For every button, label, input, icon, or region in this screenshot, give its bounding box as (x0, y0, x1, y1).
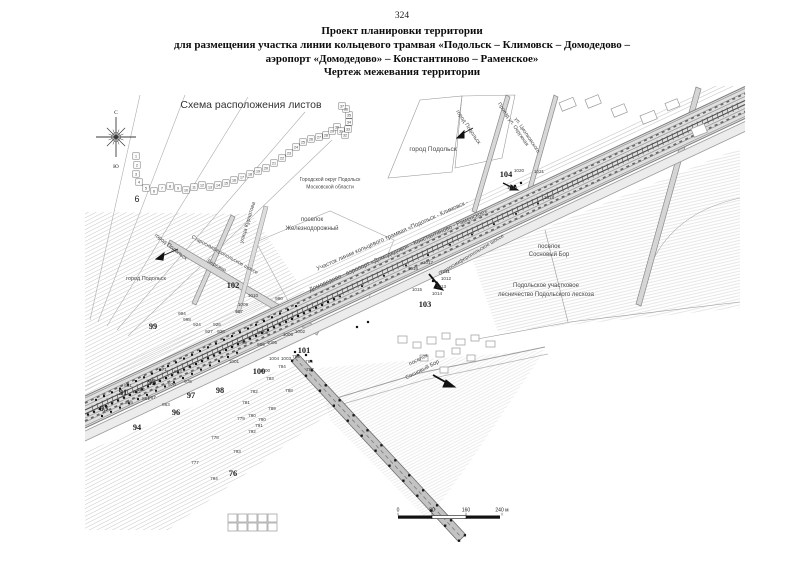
point-number: 792 (248, 429, 256, 434)
point-number: 926 (213, 322, 221, 327)
boundary-point (183, 368, 185, 370)
point-number: 1012 (441, 276, 452, 281)
boundary-point (93, 411, 95, 413)
chain-sheet-number: 19 (256, 169, 260, 173)
boundary-point (367, 321, 369, 323)
boundary-point (450, 519, 452, 521)
chain-sheet-number: 22 (280, 156, 284, 160)
boundary-point (103, 395, 105, 397)
point-number: 859 (125, 400, 133, 405)
point-number: 1005 (267, 340, 278, 345)
sheet-number: 91 (119, 388, 127, 397)
boundary-point (471, 234, 473, 236)
boundary-point (366, 429, 368, 431)
scale-segment (466, 516, 500, 519)
sheet-number: 94 (133, 423, 141, 432)
point-number: 784 (278, 364, 286, 369)
area-label: Сосновый Бор (529, 251, 570, 258)
area-label: поселок (301, 217, 324, 223)
boundary-point (155, 390, 157, 392)
area-label: Московской области (306, 184, 354, 191)
boundary-point (279, 313, 281, 315)
point-number: 778 (211, 435, 219, 440)
chain-sheet-number: 25 (301, 140, 305, 144)
point-number: 1013 (436, 284, 447, 289)
boundary-point (295, 305, 297, 307)
hatch-area-lower-center (318, 350, 545, 520)
boundary-point (319, 390, 321, 392)
boundary-point (95, 399, 97, 401)
boundary-point (143, 376, 145, 378)
boundary-point (352, 414, 354, 416)
scale-segment (398, 516, 432, 519)
point-number: 791 (255, 423, 263, 428)
boundary-point (285, 321, 287, 323)
boundary-point (327, 301, 329, 303)
boundary-point (87, 413, 89, 415)
boundary-point (117, 399, 119, 401)
boundary-point (101, 415, 103, 417)
boundary-point (416, 495, 418, 497)
area-label: лесничество Подольского лесхоза (498, 292, 595, 298)
boundary-point (356, 326, 358, 328)
area-label: город Подольск (454, 109, 482, 146)
scale-tick-label: 160 (462, 508, 471, 514)
boundary-point (111, 391, 113, 393)
boundary-point (135, 380, 137, 382)
chain-sheet-number: 26 (309, 137, 313, 141)
boundary-point (236, 352, 238, 354)
area-label: 6 (134, 194, 139, 204)
boundary-point (231, 346, 233, 348)
chain-sheet-number: 14 (216, 183, 220, 187)
area-label: Городской округ Подольск (300, 176, 362, 183)
compass-rose (96, 117, 136, 157)
point-number: 777 (191, 460, 199, 465)
chain-sheet-number: 27 (317, 135, 321, 139)
document-page: 324 Проект планировки территории для раз… (0, 0, 804, 571)
chain-sheet-number: 1 (135, 154, 137, 158)
point-number: 999 (257, 342, 265, 347)
point-number: 1014 (432, 291, 443, 296)
area-label: Железнодорожный (285, 225, 338, 232)
point-number: 1017 (423, 260, 434, 265)
point-number: 1020 (514, 168, 525, 173)
sheet-number: 95 (148, 378, 156, 387)
point-number: 928 (217, 329, 225, 334)
boundary-point (361, 435, 363, 437)
chain-sheet-number: 18 (248, 172, 252, 176)
sheet-number: 96 (172, 408, 180, 417)
boundary-point (294, 351, 296, 353)
scale-bar (398, 513, 502, 519)
boundary-point (215, 343, 217, 345)
point-number: 1003 (281, 356, 292, 361)
boundary-point (305, 375, 307, 377)
boundary-point (111, 402, 113, 404)
boundary-point (129, 394, 131, 396)
boundary-point (449, 244, 451, 246)
point-number: 1016 (408, 266, 419, 271)
chain-sheet-number: 15 (224, 181, 228, 185)
compass-north-label: С (114, 110, 118, 116)
boundary-point (225, 349, 227, 351)
boundary-point (303, 312, 305, 314)
boundary-point (247, 328, 249, 330)
chain-sheet-number: 13 (208, 185, 212, 189)
boundary-point (333, 298, 335, 300)
boundary-point (213, 354, 215, 356)
chain-sheet-number: 12 (200, 183, 204, 187)
chain-sheet-number: 10 (184, 188, 188, 192)
boundary-point (339, 296, 341, 298)
compass-south-label: Ю (113, 164, 119, 170)
point-number: 787 (306, 367, 314, 372)
boundary-point (458, 540, 460, 542)
point-number: 1021 (534, 169, 545, 174)
point-number: 1008 (258, 330, 269, 335)
area-label: город Подольск (409, 146, 456, 153)
point-number: 861 (142, 396, 150, 401)
sheet-number: 97 (187, 391, 195, 400)
point-number: 788 (285, 388, 293, 393)
boundary-point (164, 385, 166, 387)
boundary-point (209, 364, 211, 366)
point-number: 1004 (269, 356, 280, 361)
point-number: 1011 (440, 269, 450, 274)
boundary-point (191, 354, 193, 356)
area-label: город Подольск (126, 276, 167, 282)
boundary-point (309, 309, 311, 311)
boundary-point (218, 360, 220, 362)
point-number: 1018 (544, 195, 555, 200)
point-number: 785 (292, 354, 300, 359)
boundary-point (167, 365, 169, 367)
boundary-point (249, 338, 251, 340)
chain-sheet-number: 7 (161, 186, 163, 190)
area-label: Подольское участковое (513, 283, 580, 289)
boundary-point (520, 182, 522, 184)
boundary-point (291, 360, 293, 362)
sheet-number: 103 (419, 300, 431, 309)
chain-sheet-number: 35 (347, 113, 351, 117)
boundary-point (464, 534, 466, 536)
point-number: 1019 (507, 185, 518, 190)
boundary-point (287, 309, 289, 311)
boundary-point (199, 350, 201, 352)
point-number: 1009 (238, 302, 249, 307)
chain-sheet-number: 17 (240, 175, 244, 179)
sheet-number: 76 (229, 469, 237, 478)
boundary-point (165, 377, 167, 379)
point-number: 1015 (412, 287, 423, 292)
sheet-number: 104 (500, 170, 512, 179)
boundary-point (515, 213, 517, 215)
scale-ticks (398, 513, 502, 516)
chain-sheet-number: 28 (324, 133, 328, 137)
point-number: 924 (193, 322, 201, 327)
point-number: 1000 (260, 368, 271, 373)
boundary-point (436, 504, 438, 506)
boundary-point (374, 450, 376, 452)
boundary-point (271, 316, 273, 318)
boundary-point (200, 369, 202, 371)
chain-sheet-number: 11 (192, 185, 196, 189)
boundary-point (175, 361, 177, 363)
point-number: 998 (183, 317, 191, 322)
chain-sheet-number: 5 (145, 186, 147, 190)
chain-sheet-number: 34 (347, 120, 351, 124)
sheet-number: 93 (100, 404, 108, 413)
hatched-areas (85, 148, 740, 530)
map-drawing: Схема расположения листов6город Подольск… (0, 0, 804, 571)
boundary-point (347, 420, 349, 422)
boundary-point (405, 265, 407, 267)
boundary-point (291, 318, 293, 320)
boundary-point (183, 358, 185, 360)
chain-sheet-number: 9 (177, 186, 179, 190)
boundary-point (110, 411, 112, 413)
point-number: 790 (258, 417, 266, 422)
point-number: 786 (305, 359, 313, 364)
point-number: 994 (178, 311, 186, 316)
boundary-point (239, 331, 241, 333)
boundary-point (537, 203, 539, 205)
boundary-point (380, 444, 382, 446)
chain-sheet-number: 23 (287, 151, 291, 155)
point-number: 781 (242, 400, 250, 405)
boundary-point (333, 405, 335, 407)
boundary-point (325, 384, 327, 386)
point-number: 1001 (229, 359, 240, 364)
chain-sheet-number: 29 (330, 129, 334, 133)
boundary-point (137, 398, 139, 400)
chain-sheet-number: 32 (343, 133, 347, 137)
sheet-number: 99 (149, 322, 157, 331)
point-number: 987 (235, 309, 243, 314)
chain-sheet-number: 37 (340, 104, 344, 108)
boundary-point (315, 307, 317, 309)
boundary-point (195, 363, 197, 365)
chain-sheet-number: 8 (169, 184, 171, 188)
boundary-point (427, 254, 429, 256)
map-content: Схема расположения листов6город Подольск… (85, 73, 745, 542)
area-label: Схема расположения листов (180, 99, 322, 111)
point-number: 794 (210, 476, 218, 481)
boundary-point (223, 339, 225, 341)
boundary-point (263, 320, 265, 322)
boundary-point (493, 223, 495, 225)
scale-tick-label: 240 м (495, 508, 509, 514)
point-number: 862 (133, 389, 141, 394)
boundary-point (297, 315, 299, 317)
boundary-point (383, 275, 385, 277)
boundary-point (219, 352, 221, 354)
chain-sheet-number: 3 (135, 172, 137, 176)
boundary-point (207, 357, 209, 359)
point-number: 961 (124, 383, 132, 388)
boundary-point (207, 346, 209, 348)
chain-sheet-number: 36 (344, 107, 348, 111)
point-number: 780 (248, 413, 256, 418)
scale-tick-label: 80 (429, 508, 435, 514)
boundary-point (191, 373, 193, 375)
boundary-point (361, 285, 363, 287)
sheet-number: 102 (227, 281, 239, 290)
chain-sheet-number: 6 (153, 189, 155, 193)
point-number: 1006 (283, 332, 294, 337)
boundary-point (394, 459, 396, 461)
point-number: 779 (237, 416, 245, 421)
sheet-number: 98 (216, 386, 224, 395)
point-number: 927 (205, 329, 213, 334)
point-number: 971 (159, 367, 167, 372)
point-number: 863 (162, 402, 170, 407)
point-number: 783 (266, 376, 274, 381)
boundary-point (151, 373, 153, 375)
scale-tick-label: 0 (397, 508, 400, 514)
chain-sheet-number: 2 (136, 163, 138, 167)
boundary-point (444, 525, 446, 527)
boundary-point (388, 465, 390, 467)
point-number: 975 (184, 379, 192, 384)
boundary-point (189, 366, 191, 368)
boundary-point (255, 324, 257, 326)
boundary-point (273, 326, 275, 328)
boundary-point (231, 335, 233, 337)
boundary-point (321, 304, 323, 306)
chain-sheet-number: 20 (264, 166, 268, 170)
point-number: 970 (168, 382, 176, 387)
boundary-point (279, 323, 281, 325)
boundary-point (402, 480, 404, 482)
point-number: 1002 (295, 329, 306, 334)
boundary-point (201, 360, 203, 362)
boundary-point (227, 356, 229, 358)
boundary-point (171, 374, 173, 376)
point-number: 793 (233, 449, 241, 454)
point-number: 789 (268, 406, 276, 411)
point-number: 782 (250, 389, 258, 394)
point-number: 995 (239, 340, 247, 345)
boundary-point (339, 399, 341, 401)
point-number: 1010 (248, 293, 259, 298)
point-number: 990 (275, 296, 283, 301)
boundary-point (255, 335, 257, 337)
boundary-point (408, 474, 410, 476)
chain-sheet-number: 24 (294, 145, 298, 149)
chain-sheet-number: 16 (232, 178, 236, 182)
boundary-point (159, 380, 161, 382)
scale-segment (432, 516, 466, 519)
chain-sheet-number: 4 (138, 180, 140, 184)
point-number: 973 (174, 369, 182, 374)
chain-sheet-number: 21 (272, 161, 276, 165)
area-label: поселок (538, 244, 561, 250)
chain-sheet-number: 33 (346, 127, 350, 131)
boundary-point (422, 489, 424, 491)
boundary-point (119, 407, 121, 409)
